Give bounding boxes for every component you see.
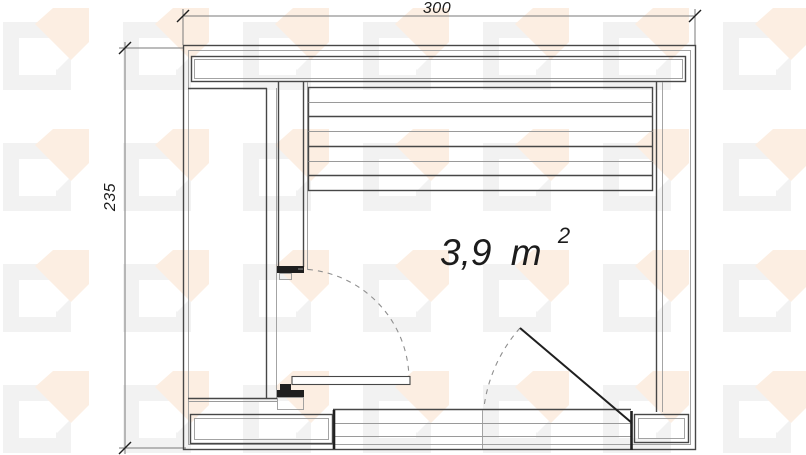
floor-plan-drawing: 300 235	[0, 0, 806, 455]
door-jamb-bottom	[277, 390, 304, 397]
door-hinge-block	[280, 384, 291, 390]
door-leaf-open	[292, 377, 410, 385]
area-value: 3,9	[440, 232, 491, 273]
area-superscript: 2	[557, 223, 570, 248]
area-unit: m	[511, 232, 542, 273]
height-dimension-label: 235	[102, 183, 119, 212]
width-dimension-label: 300	[423, 0, 451, 17]
